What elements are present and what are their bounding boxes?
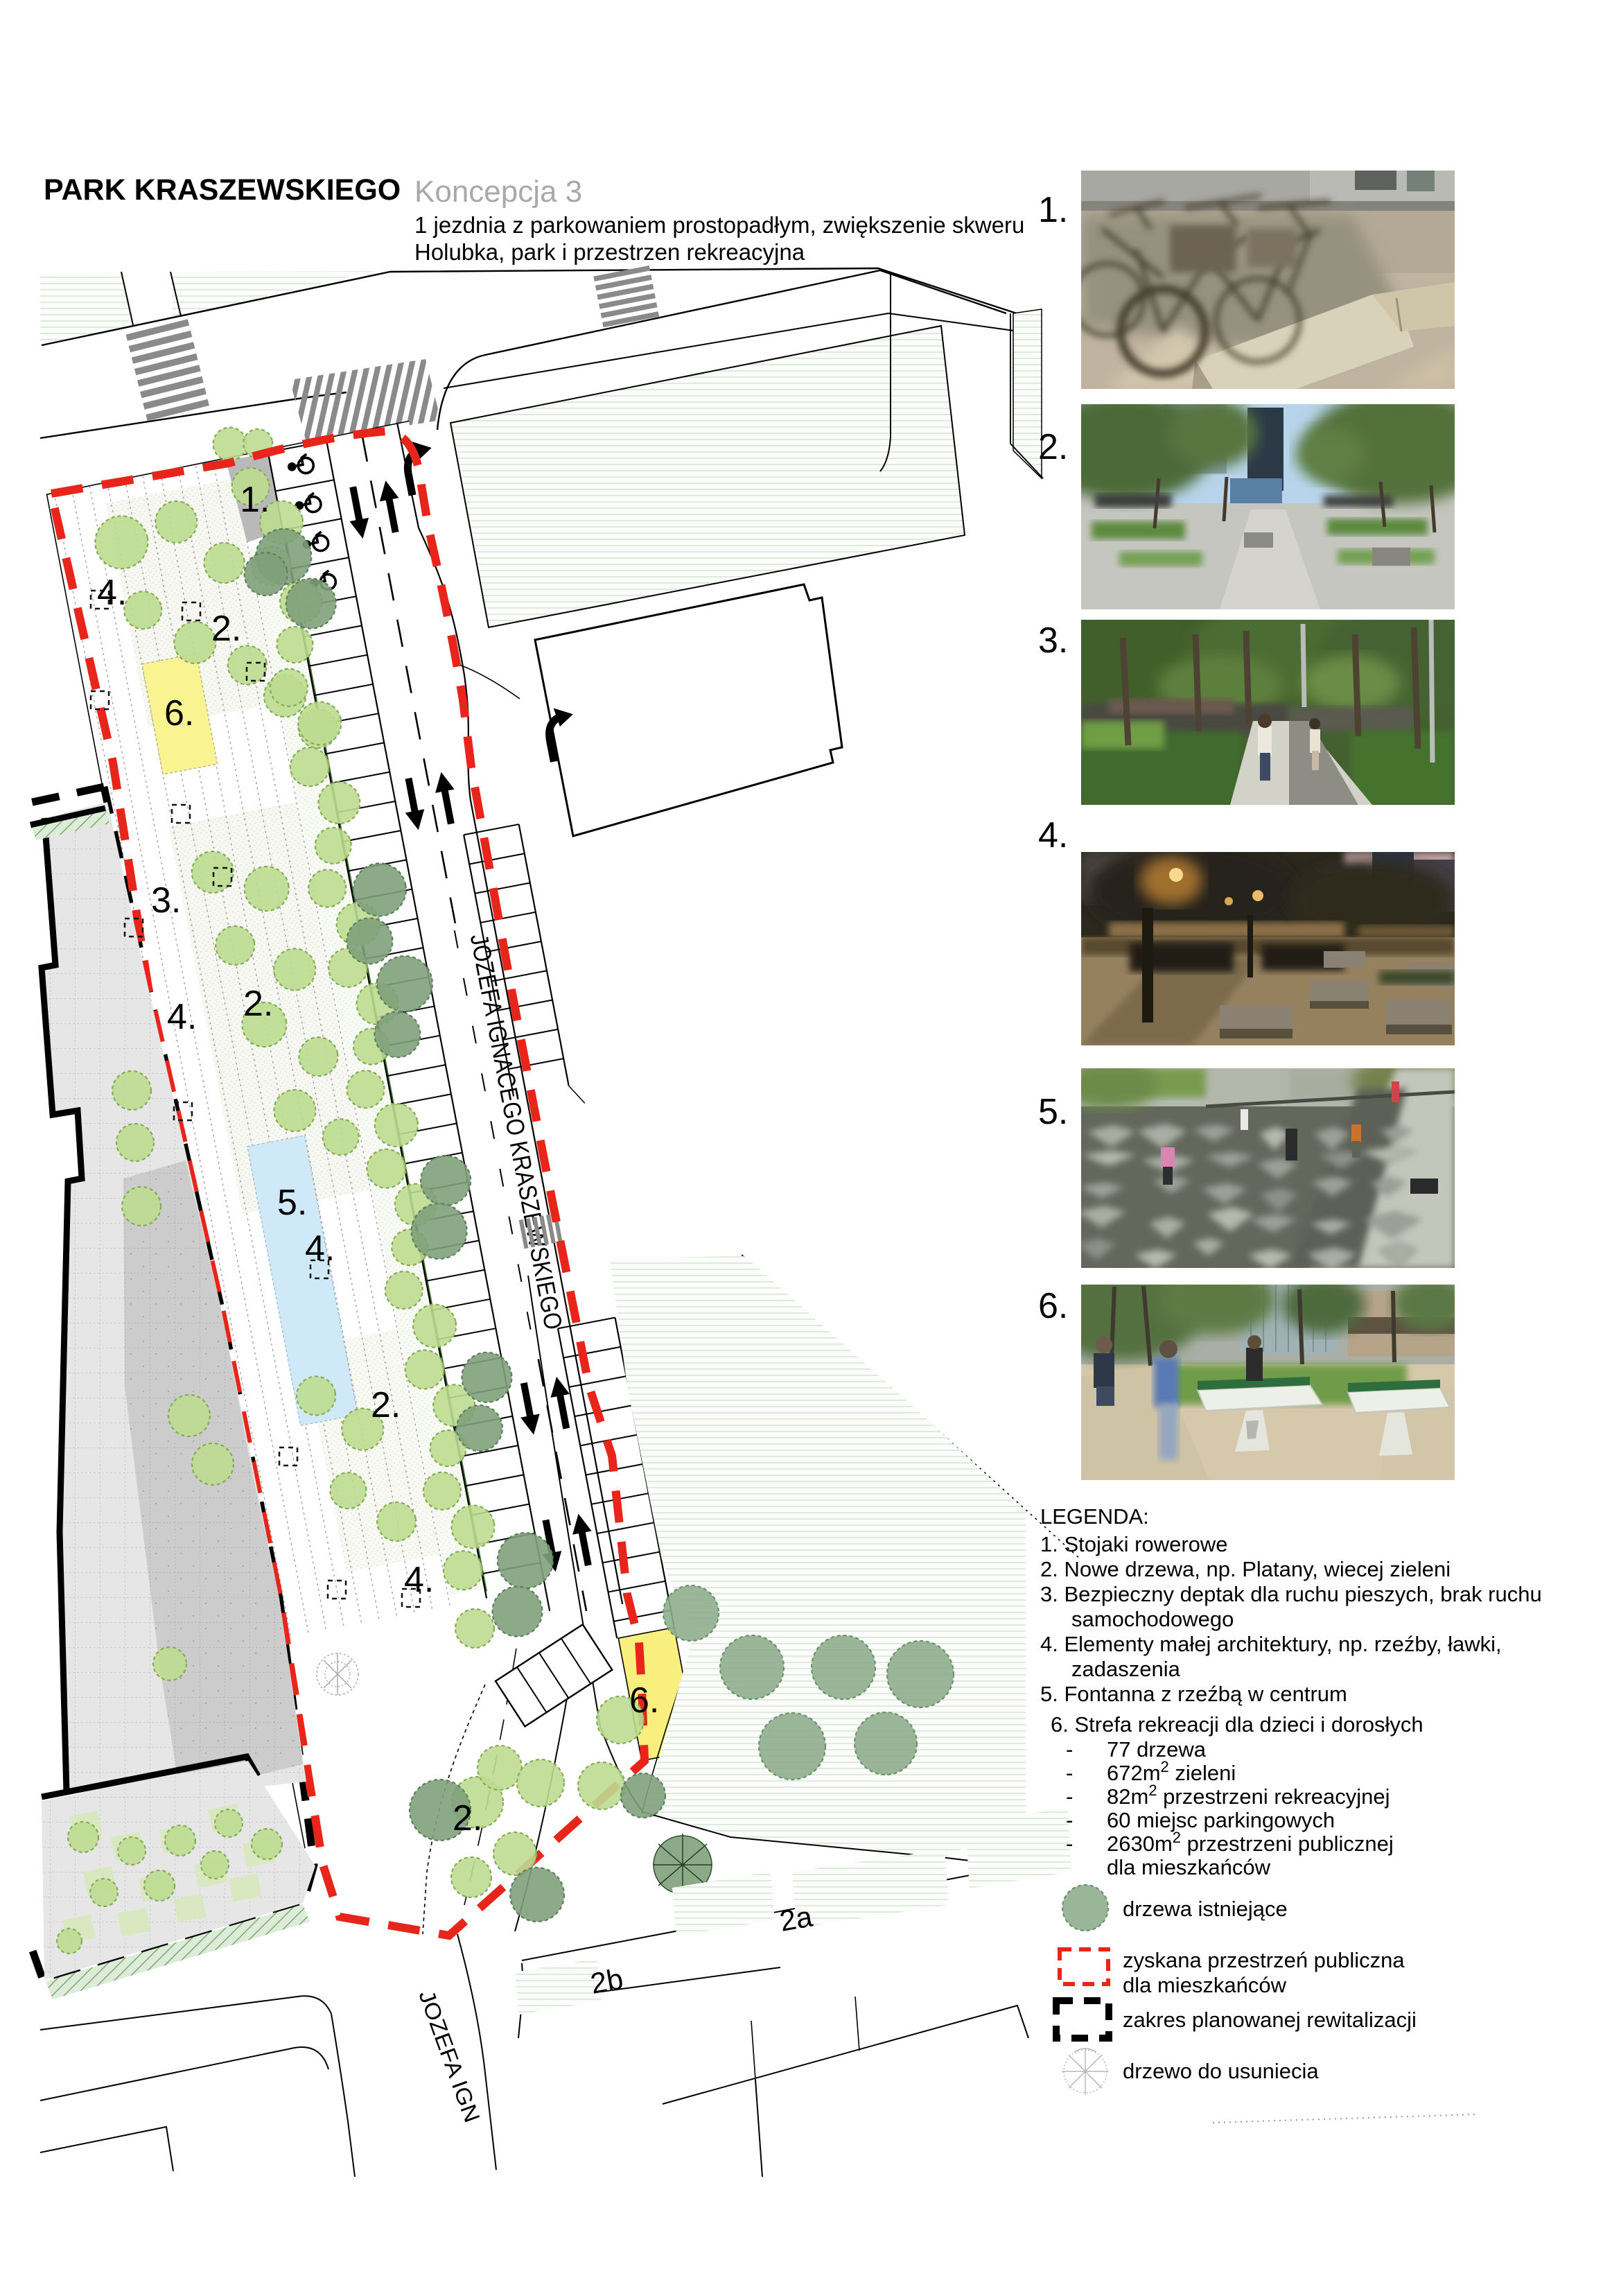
svg-text:4. Elementy małej architektury: 4. Elementy małej architektury, np. rzeź… bbox=[1040, 1632, 1502, 1656]
svg-text:4.: 4. bbox=[404, 1560, 434, 1600]
svg-text:60 miejsc parkingowych: 60 miejsc parkingowych bbox=[1107, 1808, 1335, 1832]
svg-text:-: - bbox=[1066, 1808, 1073, 1832]
svg-text:2.: 2. bbox=[211, 609, 241, 649]
svg-text:LEGENDA:: LEGENDA: bbox=[1040, 1504, 1149, 1529]
svg-text:-: - bbox=[1066, 1784, 1073, 1809]
svg-text:5.: 5. bbox=[1038, 1092, 1068, 1132]
svg-text:zakres planowanej rewitalizacj: zakres planowanej rewitalizacji bbox=[1123, 2008, 1417, 2032]
svg-text:4.: 4. bbox=[1038, 815, 1068, 855]
svg-text:1.: 1. bbox=[1038, 190, 1068, 230]
svg-text:3.: 3. bbox=[151, 880, 181, 921]
svg-text:5.: 5. bbox=[277, 1183, 307, 1223]
svg-text:4.: 4. bbox=[97, 573, 127, 613]
svg-text:4.: 4. bbox=[305, 1228, 335, 1269]
svg-text:2.: 2. bbox=[453, 1798, 482, 1838]
svg-text:77 drzewa: 77 drzewa bbox=[1107, 1737, 1207, 1762]
svg-text:5. Fontanna z rzeźbą w centrum: 5. Fontanna z rzeźbą w centrum bbox=[1040, 1682, 1347, 1706]
svg-text:2630m2 przestrzeni publicznej: 2630m2 przestrzeni publicznej bbox=[1107, 1829, 1394, 1856]
svg-text:2b: 2b bbox=[588, 1962, 625, 1999]
svg-text:-: - bbox=[1066, 1832, 1073, 1856]
svg-text:2.: 2. bbox=[1038, 427, 1068, 467]
svg-text:6. Strefa rekreacji dla dzieci: 6. Strefa rekreacji dla dzieci i dorosły… bbox=[1051, 1712, 1423, 1737]
svg-text:zadaszenia: zadaszenia bbox=[1071, 1657, 1181, 1681]
svg-text:2a: 2a bbox=[777, 1899, 815, 1938]
svg-text:1 jezdnia z parkowaniem prosto: 1 jezdnia z parkowaniem prostopadłym, zw… bbox=[414, 212, 1024, 238]
svg-text:Koncepcja 3: Koncepcja 3 bbox=[414, 175, 582, 209]
svg-text:2.: 2. bbox=[371, 1385, 401, 1425]
svg-text:2. Nowe drzewa, np. Platany, w: 2. Nowe drzewa, np. Platany, wiecej ziel… bbox=[1040, 1557, 1451, 1581]
svg-text:dla mieszkańców: dla mieszkańców bbox=[1107, 1855, 1271, 1879]
svg-text:Holubka, park i przestrzen rek: Holubka, park i przestrzen rekreacyjna bbox=[414, 239, 805, 265]
svg-text:672m2 zieleni: 672m2 zieleni bbox=[1107, 1758, 1236, 1785]
svg-text:dla mieszkańców: dla mieszkańców bbox=[1123, 1973, 1287, 1997]
svg-text:6.: 6. bbox=[164, 693, 194, 733]
svg-text:4.: 4. bbox=[167, 997, 197, 1037]
svg-text:1.: 1. bbox=[240, 480, 270, 520]
svg-text:-: - bbox=[1066, 1737, 1073, 1762]
svg-text:3.: 3. bbox=[1038, 620, 1068, 661]
svg-text:6.: 6. bbox=[629, 1680, 659, 1721]
svg-text:1. Stojaki rowerowe: 1. Stojaki rowerowe bbox=[1040, 1532, 1228, 1556]
svg-text:-: - bbox=[1066, 1761, 1073, 1785]
svg-text:drzewa istniejące: drzewa istniejące bbox=[1123, 1897, 1288, 1921]
svg-text:3. Bezpieczny deptak dla ruchu: 3. Bezpieczny deptak dla ruchu pieszych,… bbox=[1040, 1582, 1542, 1606]
svg-text:2.: 2. bbox=[243, 984, 273, 1024]
svg-text:6.: 6. bbox=[1038, 1286, 1068, 1326]
svg-text:zyskana przestrzeń publiczna: zyskana przestrzeń publiczna bbox=[1123, 1948, 1405, 1972]
svg-text:drzewo do usuniecia: drzewo do usuniecia bbox=[1123, 2059, 1319, 2083]
svg-text:samochodowego: samochodowego bbox=[1071, 1607, 1234, 1631]
svg-text:PARK KRASZEWSKIEGO: PARK KRASZEWSKIEGO bbox=[44, 173, 401, 207]
